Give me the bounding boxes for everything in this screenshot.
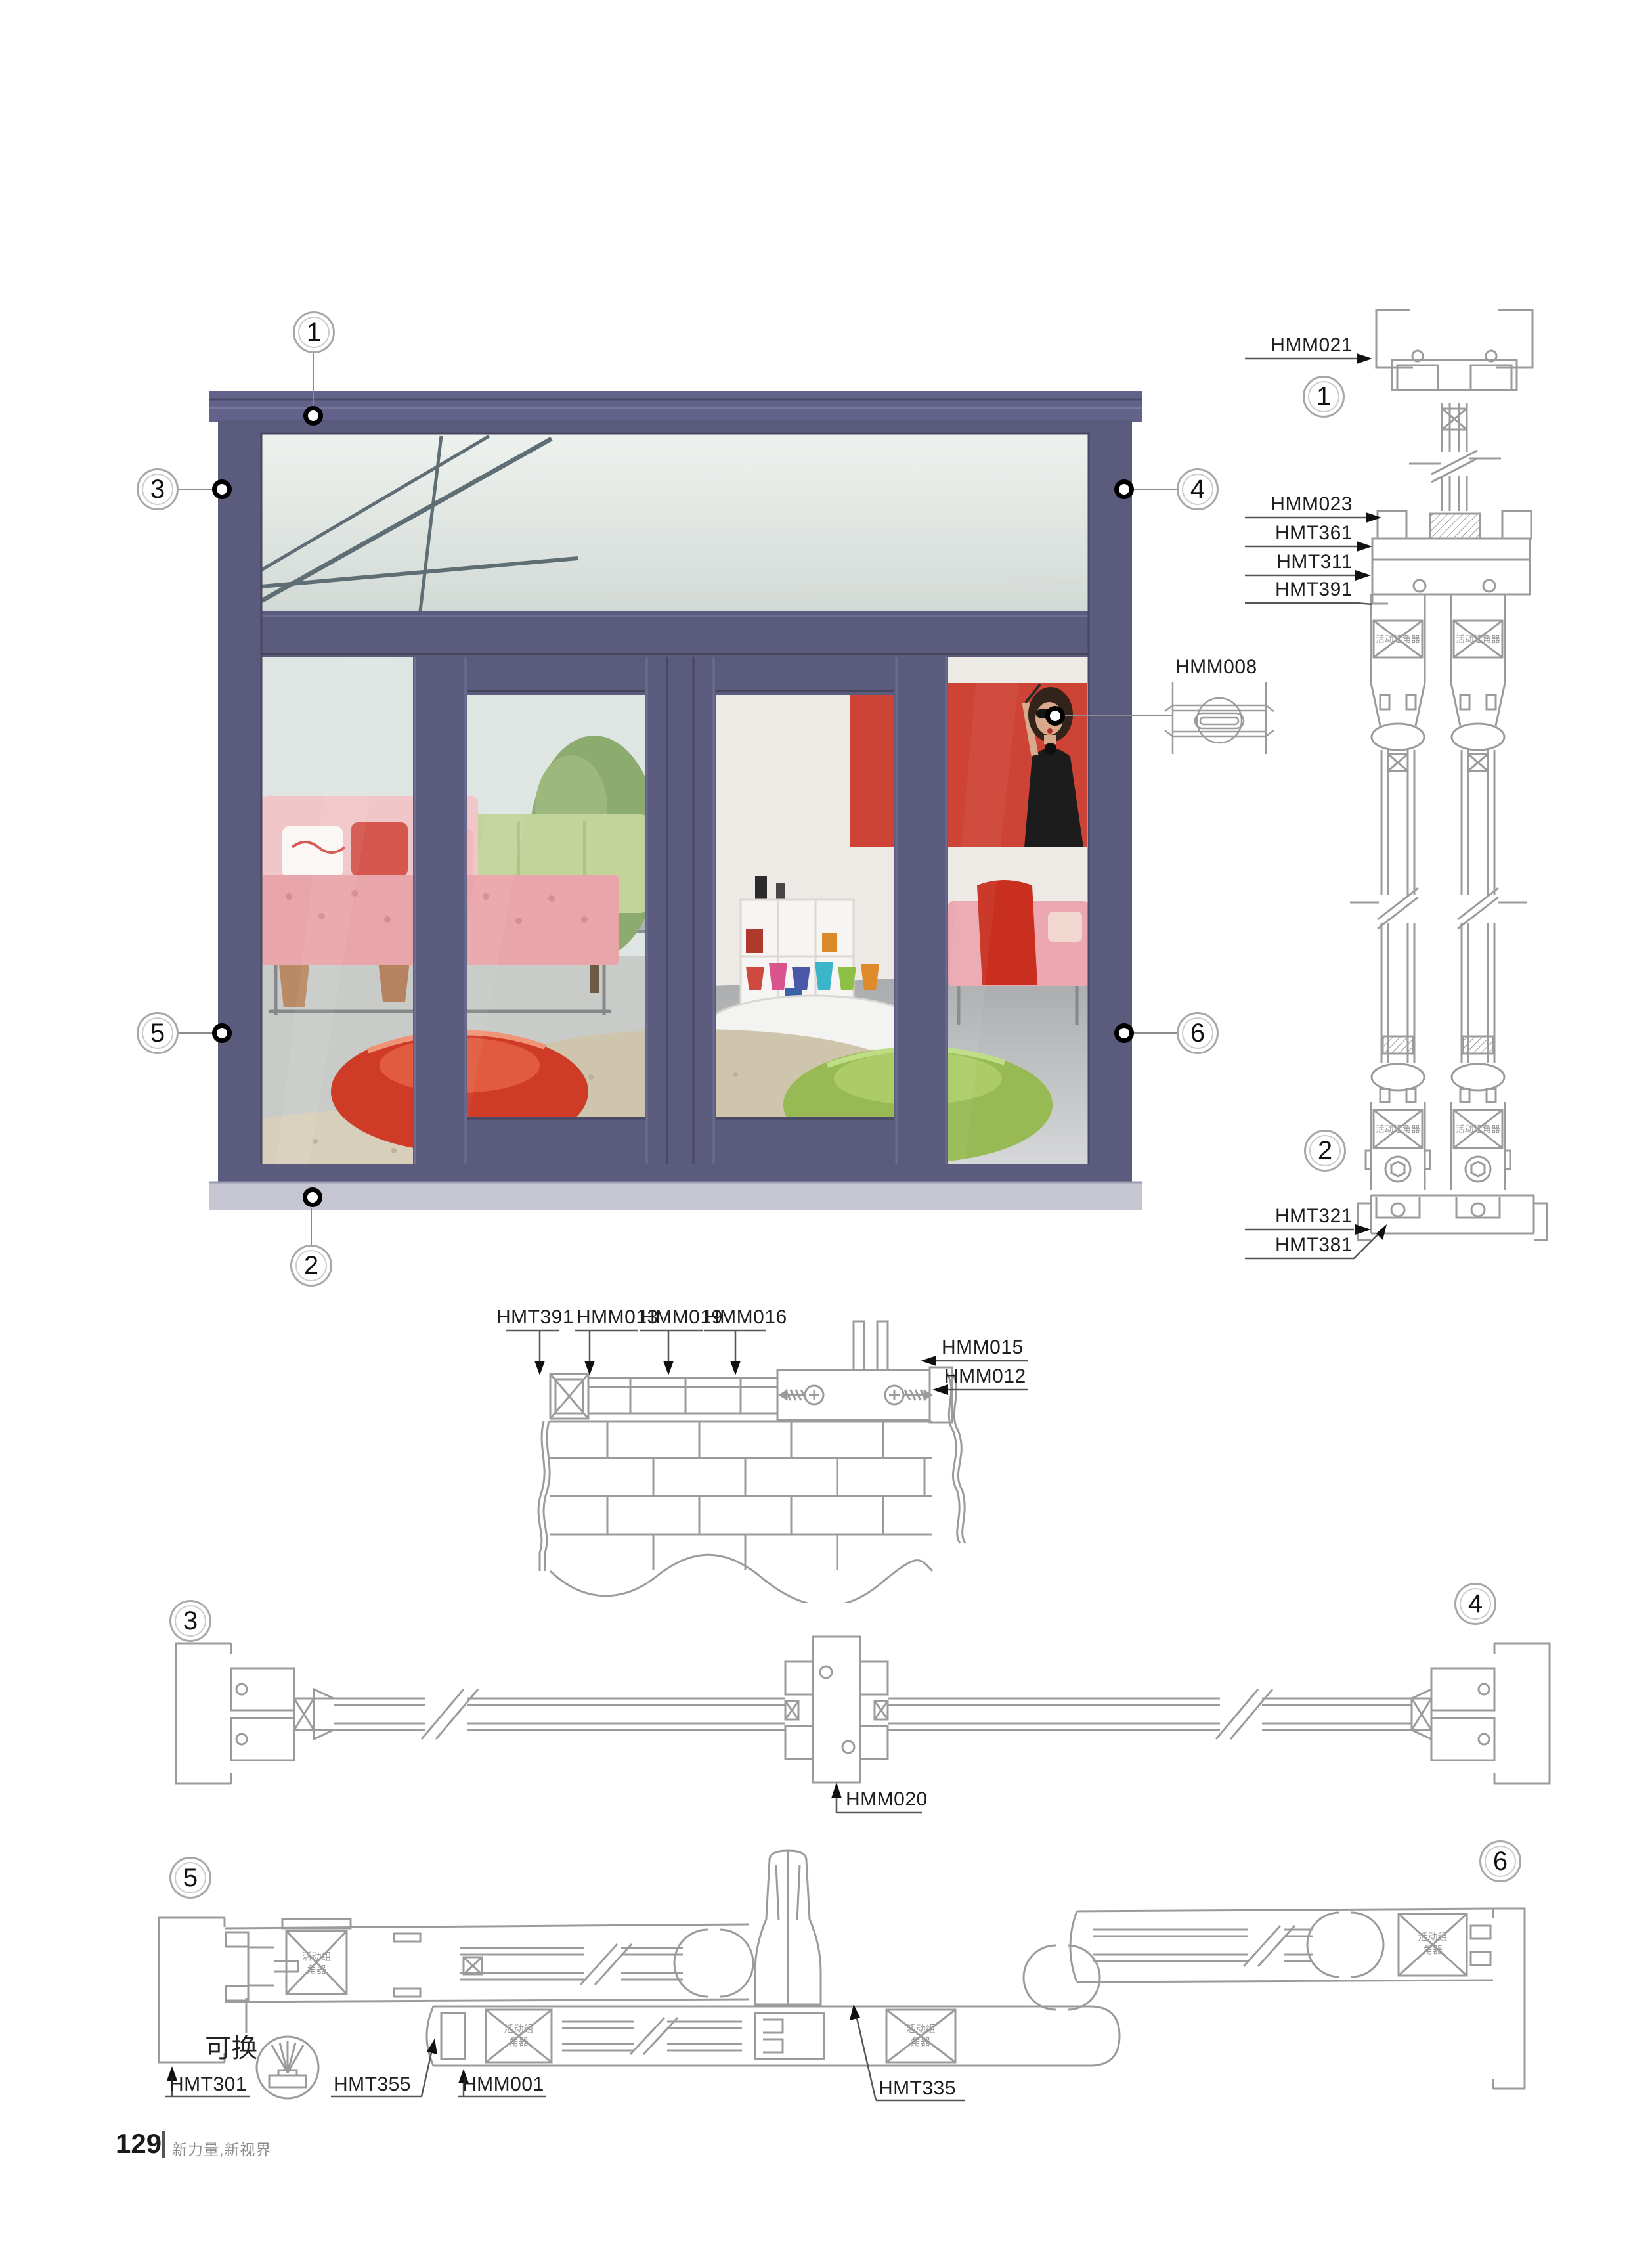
leader-line-6: [1134, 1032, 1177, 1034]
label-hmt391: HMT391: [1241, 578, 1353, 602]
leader-line-2: [311, 1208, 312, 1245]
leader-line-1: [313, 353, 314, 407]
pb-geometry: [159, 1851, 1525, 2098]
catalog-page: 1 2 3 4 5 6 HMM008: [0, 0, 1652, 2258]
marker-2-label: 2: [1318, 1136, 1332, 1166]
marker-4-label: 4: [1468, 1589, 1483, 1619]
window-elevation-photo: [204, 384, 1149, 1218]
pm-geometry: [176, 1637, 1550, 1784]
corner-connector-text: 活动组角器: [1376, 1124, 1420, 1134]
reference-dot-left-lower: [212, 1023, 232, 1043]
leader-line-5: [179, 1032, 213, 1034]
section-marker-2: 2: [290, 1245, 332, 1287]
reference-dot-right-lower: [1114, 1023, 1134, 1043]
corner-connector-text: 活动组: [301, 1951, 331, 1962]
vertical-section-drawing: 活动组角器 活动组角器 活动组角器 活动组角器: [1234, 302, 1628, 1274]
page-number: 129: [116, 2128, 162, 2159]
marker-4-label: 4: [1190, 475, 1205, 504]
label-hmt391-wall: HMT391: [496, 1306, 574, 1329]
section-marker-2-detail: 2: [1304, 1130, 1346, 1172]
section-marker-5-plan: 5: [169, 1857, 211, 1899]
section-marker-1-detail: 1: [1303, 376, 1345, 418]
label-hmt311: HMT311: [1241, 550, 1353, 574]
label-hmm012: HMM012: [944, 1365, 1026, 1388]
marker-1-label: 1: [307, 318, 321, 347]
marker-3-label: 3: [183, 1606, 198, 1636]
marker-5-label: 5: [183, 1863, 198, 1893]
label-hmt301: HMT301: [169, 2073, 247, 2096]
marker-2-label: 2: [304, 1251, 318, 1281]
section-marker-4: 4: [1177, 468, 1219, 510]
corner-connector-text: 活动组角器: [1456, 1124, 1500, 1134]
section-marker-3: 3: [137, 468, 179, 510]
corner-connector-text: 活动组角器: [1376, 634, 1420, 644]
footer-divider: [162, 2131, 165, 2158]
marker-6-label: 6: [1190, 1019, 1205, 1048]
reference-dot-hmm008: [1045, 706, 1065, 726]
vs-geometry: [1350, 310, 1547, 1240]
label-hmt321: HMT321: [1241, 1205, 1353, 1228]
pm-label-arrow: [831, 1782, 842, 1798]
wd-geometry: [538, 1321, 965, 1603]
section-marker-3-plan: 3: [169, 1600, 211, 1642]
reference-dot-top: [303, 406, 323, 426]
reference-dot-right-upper: [1114, 479, 1134, 499]
section-marker-6: 6: [1177, 1012, 1219, 1054]
transom-glass: [261, 433, 1089, 611]
label-replaceable: 可换: [205, 2033, 258, 2064]
corner-connector-text: 活动组: [1418, 1932, 1447, 1943]
corner-connector-text: 活动组: [504, 2024, 533, 2035]
reference-dot-left-upper: [212, 479, 232, 499]
marker-6-label: 6: [1493, 1847, 1508, 1876]
label-hmt381: HMT381: [1241, 1233, 1353, 1257]
leader-line-hmm008: [1065, 715, 1173, 716]
label-hmm021: HMM021: [1241, 334, 1353, 357]
reference-dot-bottom: [303, 1187, 322, 1207]
corner-connector-text: 角器: [1423, 1945, 1443, 1956]
label-hmm023: HMM023: [1241, 493, 1353, 516]
section-marker-1: 1: [293, 311, 335, 353]
corner-connector-text: 角器: [509, 2037, 529, 2048]
footer-slogan: 新力量,新视界: [172, 2137, 271, 2159]
label-hmm020: HMM020: [846, 1788, 928, 1811]
corner-connector-text: 角器: [307, 1964, 326, 1976]
label-hmt335: HMT335: [879, 2077, 956, 2100]
corner-connector-text: 活动组: [905, 2024, 935, 2035]
leader-line-3: [179, 489, 213, 490]
label-hmm016: HMM016: [705, 1306, 787, 1329]
label-hmm001: HMM001: [462, 2073, 544, 2096]
marker-1-label: 1: [1316, 382, 1331, 412]
corner-connector-text: 活动组角器: [1456, 634, 1500, 644]
marker-5-label: 5: [150, 1019, 165, 1048]
frame-outer-lip: [209, 391, 1142, 422]
section-marker-6-plan: 6: [1479, 1840, 1521, 1882]
corner-connector-text: 角器: [911, 2037, 930, 2048]
section-marker-5: 5: [137, 1012, 179, 1054]
section-marker-4-plan: 4: [1454, 1583, 1496, 1625]
label-hmm015: HMM015: [942, 1336, 1024, 1360]
leader-line-4: [1134, 489, 1177, 490]
label-hmt361: HMT361: [1241, 521, 1353, 545]
marker-3-label: 3: [150, 475, 165, 504]
label-hmt355: HMT355: [334, 2073, 411, 2096]
